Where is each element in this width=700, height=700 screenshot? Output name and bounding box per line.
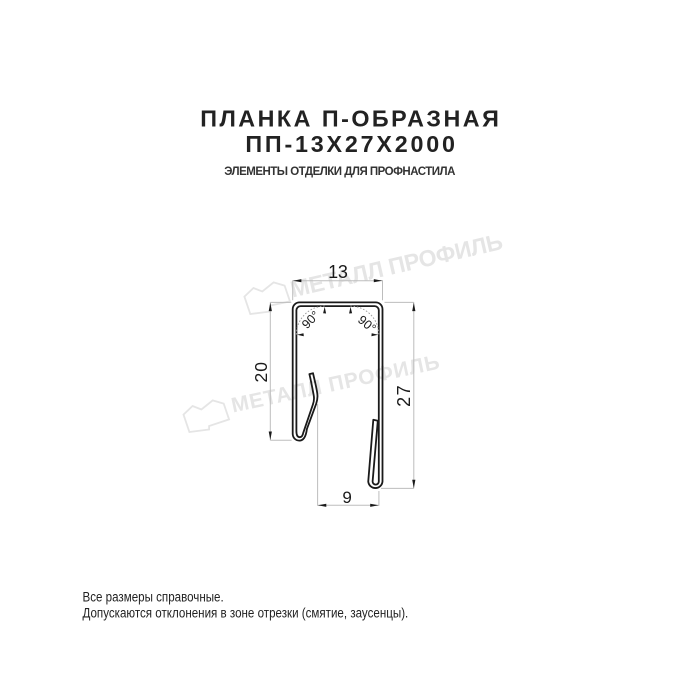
svg-text:Все размеры справочные.: Все размеры справочные.: [83, 588, 224, 604]
svg-text:90°: 90°: [299, 308, 322, 331]
svg-text:90°: 90°: [355, 313, 378, 336]
svg-text:МЕТАЛЛ ПРОФИЛЬ: МЕТАЛЛ ПРОФИЛЬ: [288, 228, 505, 302]
svg-text:Допускаются отклонения в зоне: Допускаются отклонения в зоне отрезки (с…: [83, 604, 409, 620]
svg-text:ПЛАНКА П-ОБРАЗНАЯ: ПЛАНКА П-ОБРАЗНАЯ: [200, 105, 501, 131]
svg-text:27: 27: [394, 384, 414, 407]
svg-text:ЭЛЕМЕНТЫ ОТДЕЛКИ ДЛЯ ПРОФНАСТИ: ЭЛЕМЕНТЫ ОТДЕЛКИ ДЛЯ ПРОФНАСТИЛА: [224, 166, 455, 178]
svg-text:20: 20: [251, 361, 271, 382]
svg-text:ПП-13Х27Х2000: ПП-13Х27Х2000: [245, 131, 457, 157]
svg-text:13: 13: [328, 262, 348, 282]
svg-text:9: 9: [342, 488, 351, 507]
